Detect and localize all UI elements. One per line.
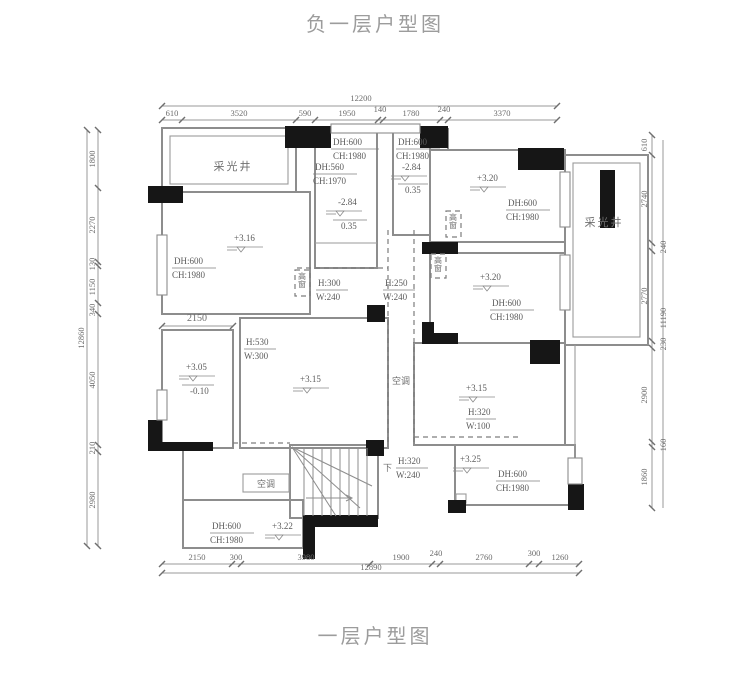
dim: 340 xyxy=(87,304,97,317)
dim: 210 xyxy=(87,442,97,455)
ch-label: CH:1980 xyxy=(496,483,530,493)
window xyxy=(560,172,570,227)
annotations-layer: DH:600 CH:1980 DH:560 CH:1970 -2.84 0.35… xyxy=(172,137,550,545)
dim: 4050 xyxy=(87,372,97,389)
dim: 3520 xyxy=(231,108,248,118)
dimension-bottom: 2150 300 3980 1900 240 2760 300 1260 128… xyxy=(159,548,582,576)
window-h-label: H:320 xyxy=(468,407,491,417)
level-mark xyxy=(265,535,301,540)
window xyxy=(331,124,420,133)
level-label: +3.15 xyxy=(300,374,321,384)
column xyxy=(148,186,183,203)
dim: 2740 xyxy=(639,191,649,208)
level-label: +3.16 xyxy=(234,233,255,243)
dh-label: DH:600 xyxy=(508,198,537,208)
high-window-label: 高窗 xyxy=(434,255,443,273)
level-label: +3.22 xyxy=(272,521,293,531)
level-label: -2.84 xyxy=(338,197,357,207)
dim: 2900 xyxy=(639,387,649,404)
dim: 1150 xyxy=(87,279,97,296)
level-mark xyxy=(227,247,263,252)
dim: 300 xyxy=(230,552,243,562)
column xyxy=(530,340,560,364)
level-mark xyxy=(326,211,362,216)
level-label: +3.15 xyxy=(466,383,487,393)
dim: 2980 xyxy=(87,492,97,509)
column xyxy=(448,500,466,513)
ch-label: CH:1980 xyxy=(396,151,430,161)
dim: 590 xyxy=(299,108,312,118)
dh-label: DH:600 xyxy=(398,137,427,147)
ch-label: CH:1980 xyxy=(506,212,540,222)
dim: 2150 xyxy=(189,552,206,562)
level-label: +3.20 xyxy=(477,173,498,183)
stairs-down-label: 下 xyxy=(383,464,392,474)
dh-label: DH:600 xyxy=(333,137,362,147)
dim: 140 xyxy=(374,104,387,114)
window-h-label: H:300 xyxy=(318,278,341,288)
dh-label: DH:560 xyxy=(315,162,344,172)
column xyxy=(422,333,458,344)
window-h-label: H:320 xyxy=(398,456,421,466)
stairs xyxy=(292,447,372,516)
ch-label: CH:1980 xyxy=(172,270,206,280)
light-well-right-label: 采光井 xyxy=(585,215,624,229)
dh-label: DH:600 xyxy=(212,521,241,531)
level-label: +3.05 xyxy=(186,362,207,372)
window-w-label: W:240 xyxy=(316,292,341,302)
room-e-outline xyxy=(162,192,310,314)
column xyxy=(367,305,385,322)
dim-bottom-total: 12890 xyxy=(360,562,381,572)
level-mark xyxy=(391,176,427,181)
column xyxy=(285,126,331,148)
dim: 3370 xyxy=(494,108,511,118)
column xyxy=(568,484,584,510)
dim: 240 xyxy=(430,548,443,558)
window-w-label: W:240 xyxy=(383,292,408,302)
level-label: -2.84 xyxy=(402,162,421,172)
floor-plan-canvas: 12200 610 3520 590 1950 140 1780 240 337… xyxy=(0,0,750,696)
dim-right-total: 11190 xyxy=(658,308,668,329)
window xyxy=(157,390,167,420)
ac-shaft-label: 空调 xyxy=(392,375,410,387)
dim-top-total: 12200 xyxy=(350,93,371,103)
dim: 300 xyxy=(528,548,541,558)
dim: 1780 xyxy=(403,108,420,118)
level-label: +3.20 xyxy=(480,272,501,282)
dim: 1900 xyxy=(393,552,410,562)
dim: 160 xyxy=(658,439,668,452)
dim: 2760 xyxy=(476,552,493,562)
window-h-label: H:530 xyxy=(246,337,269,347)
column xyxy=(422,242,458,254)
ch-label: CH:1970 xyxy=(313,176,347,186)
ch-label: CH:1980 xyxy=(210,535,244,545)
dim-left-total: 12860 xyxy=(76,327,86,348)
dim: 1950 xyxy=(339,108,356,118)
level-label: 0.35 xyxy=(405,185,421,195)
column xyxy=(366,440,384,456)
dim: 1260 xyxy=(552,552,569,562)
level-label: +3.25 xyxy=(460,454,481,464)
level-mark xyxy=(293,388,329,393)
dim: 2270 xyxy=(87,217,97,234)
column xyxy=(518,148,564,170)
level-mark xyxy=(179,376,215,381)
dim: 130 xyxy=(87,258,97,271)
dim-room-split: 2150 xyxy=(187,313,207,324)
window-h-label: H:250 xyxy=(385,278,408,288)
ch-label: CH:1980 xyxy=(333,151,367,161)
ch-label: CH:1980 xyxy=(490,312,524,322)
window xyxy=(157,235,167,295)
level-label: 0.35 xyxy=(341,221,357,231)
dh-label: DH:600 xyxy=(498,469,527,479)
level-mark xyxy=(470,187,506,192)
ac-platform-label: 空调 xyxy=(257,478,275,490)
dimension-left: 1800 2270 130 1150 340 4050 210 2980 128… xyxy=(76,127,101,549)
floor-plan-page: 负一层户型图 一层户型图 xyxy=(0,0,750,696)
dimension-inner: 2150 xyxy=(159,313,236,329)
window-w-label: W:100 xyxy=(466,421,491,431)
dim: 610 xyxy=(639,139,649,152)
dim: 610 xyxy=(166,108,179,118)
dimension-right: 610 2740 240 2770 230 2900 160 1860 1119… xyxy=(639,132,668,511)
dim: 3980 xyxy=(298,552,315,562)
level-mark xyxy=(459,397,495,402)
dh-label: DH:600 xyxy=(492,298,521,308)
window-w-label: W:300 xyxy=(244,351,269,361)
dim: 240 xyxy=(438,104,451,114)
level-mark xyxy=(473,286,509,291)
dim: 2770 xyxy=(639,288,649,305)
level-mark xyxy=(453,468,489,473)
column xyxy=(148,442,213,451)
columns-layer xyxy=(148,126,615,559)
high-window-label: 高窗 xyxy=(449,212,458,230)
dim: 1860 xyxy=(639,469,649,486)
high-window-label: 高窗 xyxy=(298,271,307,289)
dh-label: DH:600 xyxy=(174,256,203,266)
window xyxy=(568,458,582,484)
window xyxy=(560,255,570,310)
dim: 1800 xyxy=(87,151,97,168)
window-w-label: W:240 xyxy=(396,470,421,480)
light-well-left-label: 采光井 xyxy=(214,159,253,173)
dimension-top: 12200 610 3520 590 1950 140 1780 240 337… xyxy=(159,93,560,123)
level-label: -0.10 xyxy=(190,386,209,396)
dim: 240 xyxy=(658,241,668,254)
dim: 230 xyxy=(658,338,668,351)
